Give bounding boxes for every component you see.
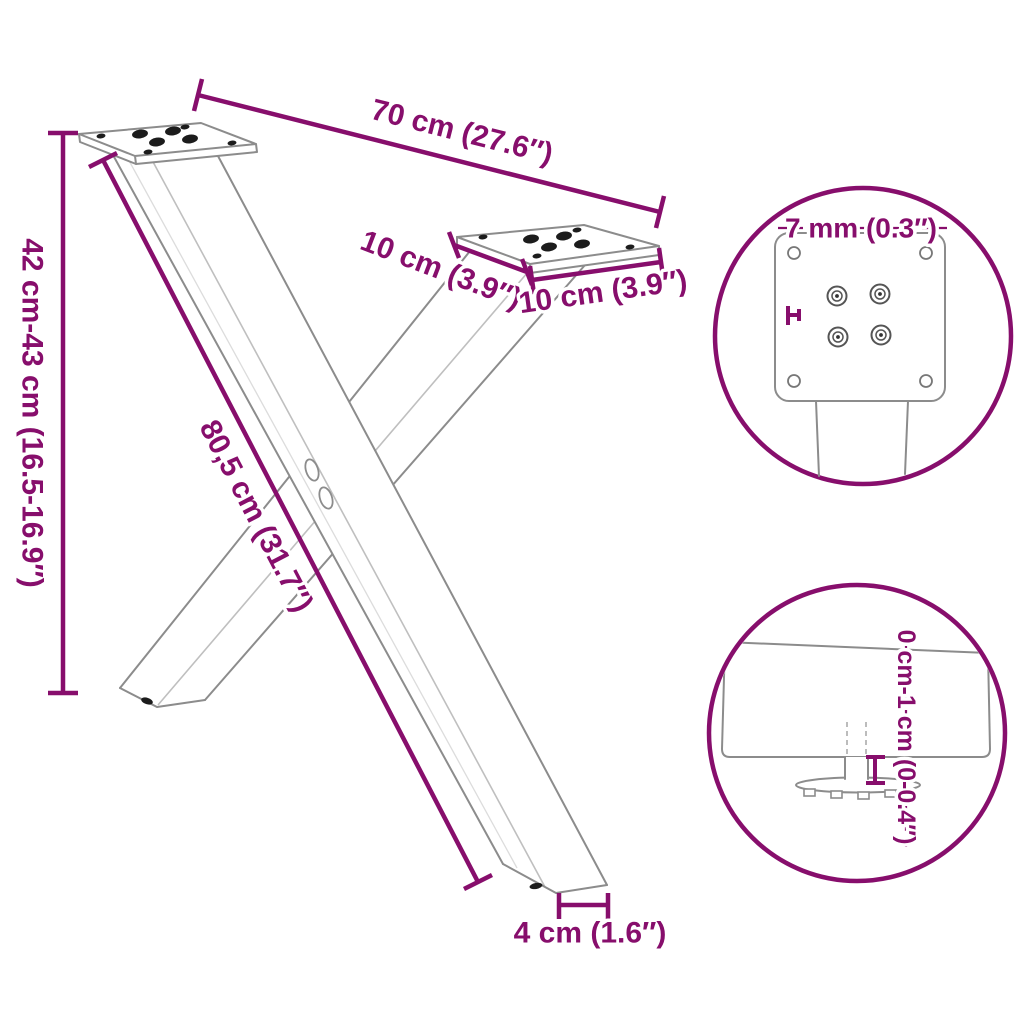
- dimension-height-label: 42 cm-43 cm (16.5-16.9″): [16, 238, 49, 588]
- foot-neck-fill: [845, 757, 868, 780]
- detail-circle-plate: 7 mm (0.3″): [715, 188, 1011, 484]
- detail-plate-corner-hole: [788, 247, 800, 259]
- foot-disc-tooth: [831, 791, 842, 798]
- detail-plate-corner-hole: [920, 375, 932, 387]
- dimension-foot-width-label: 4 cm (1.6″): [514, 917, 667, 950]
- diagram-page: 70 cm (27.6″) 42 cm-43 cm (16.5-16.9″) 8…: [0, 0, 1024, 1024]
- detail-circle-foot: 0 cm-1 cm (0-0.4″): [709, 585, 1005, 881]
- screw-hole: [872, 326, 891, 345]
- plate-thickness-label: 7 mm (0.3″): [785, 213, 937, 244]
- screw-hole: [828, 287, 847, 306]
- foot-adjust-label: 0 cm-1 cm (0-0.4″): [892, 630, 920, 845]
- detail-leg-end-body: [722, 642, 990, 757]
- screw-hole: [829, 328, 848, 347]
- table-leg-dimension-diagram: 70 cm (27.6″) 42 cm-43 cm (16.5-16.9″) 8…: [0, 0, 1024, 1024]
- detail-plate-corner-hole: [920, 247, 932, 259]
- foot-disc-tooth: [858, 792, 869, 799]
- foot-disc-tooth: [804, 789, 815, 796]
- detail-plate-corner-hole: [788, 375, 800, 387]
- screw-hole: [871, 285, 890, 304]
